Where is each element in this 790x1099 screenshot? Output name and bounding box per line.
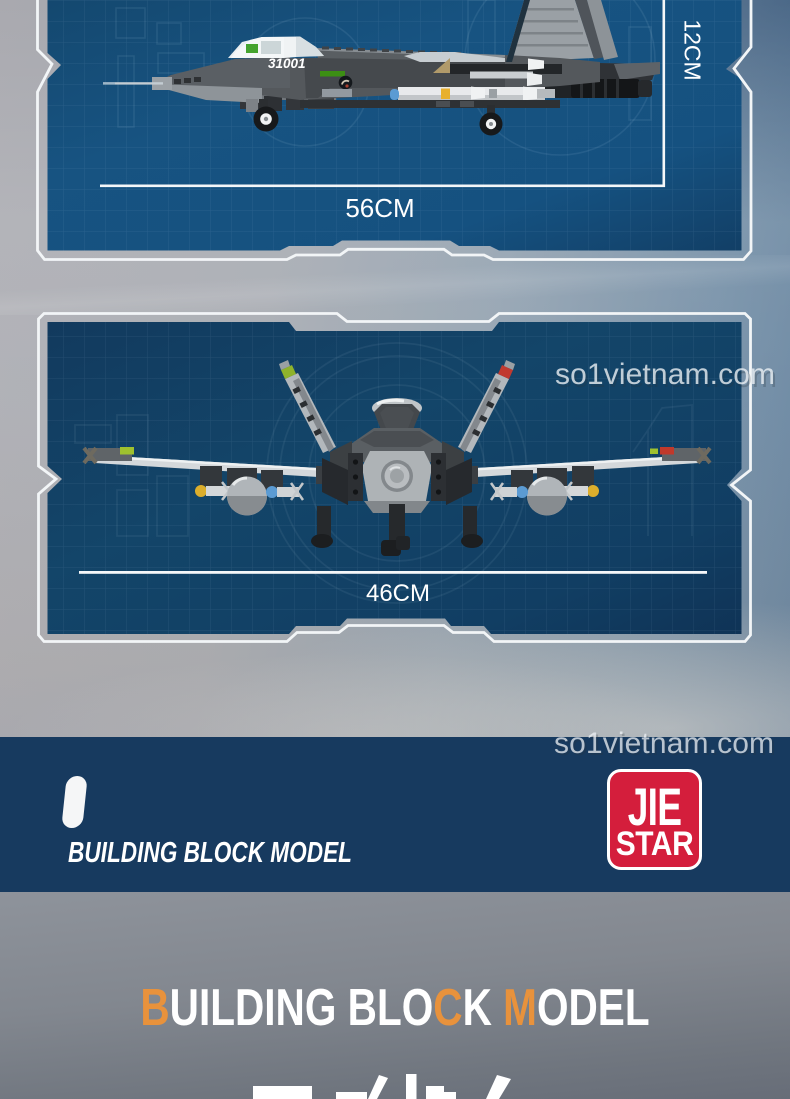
svg-text:12CM: 12CM: [680, 19, 706, 80]
svg-text:so1vietnam.com: so1vietnam.com: [555, 358, 775, 391]
svg-text:31001: 31001: [268, 56, 306, 71]
svg-text:56CM: 56CM: [345, 193, 414, 223]
svg-text:so1vietnam.com: so1vietnam.com: [554, 727, 774, 760]
svg-text:46CM: 46CM: [366, 580, 430, 607]
